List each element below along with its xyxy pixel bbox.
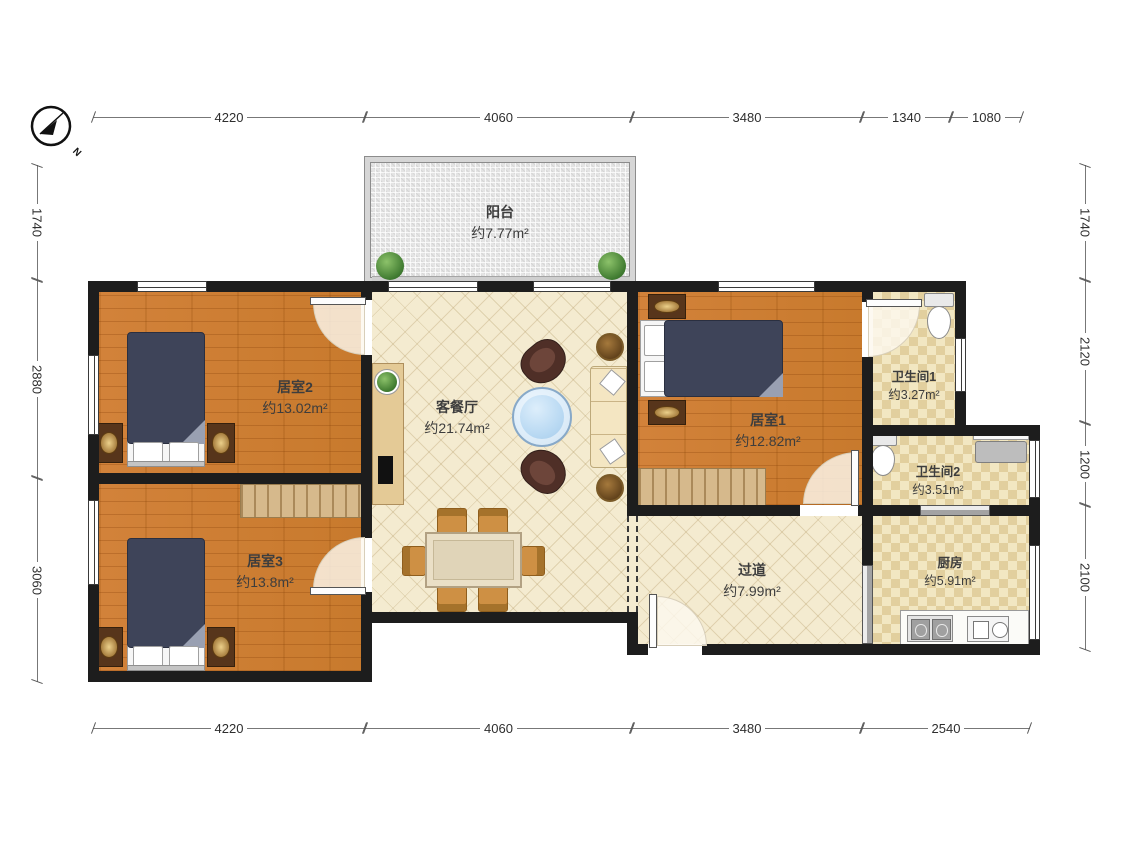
room-label-bathroom2: 卫生间2 约3.51m² xyxy=(912,463,963,499)
wall-left-exterior xyxy=(88,281,99,682)
wall-top-exterior xyxy=(88,281,966,292)
dim-label: 4060 xyxy=(480,721,517,736)
dim-right-1: 1740 xyxy=(1076,165,1094,280)
kitchen-stove xyxy=(967,616,1009,642)
nightstand xyxy=(207,627,235,667)
room-label-living: 客餐厅 约21.74m² xyxy=(424,397,489,439)
nightstand xyxy=(95,423,123,463)
compass-icon xyxy=(28,104,76,152)
room-label-bedroom1: 居室1 约12.82m² xyxy=(735,410,800,452)
dim-left-1: 1740 xyxy=(28,165,46,280)
dim-label: 1340 xyxy=(888,110,925,125)
dining-chair xyxy=(478,586,508,612)
stove-burner xyxy=(973,621,989,639)
room-name: 卫生间2 xyxy=(912,463,963,481)
dim-label: 3480 xyxy=(729,110,766,125)
balcony-plant xyxy=(598,252,626,280)
bed-bedroom1 xyxy=(640,320,783,397)
pillow xyxy=(169,646,199,667)
shower xyxy=(975,441,1027,463)
dim-label: 2120 xyxy=(1078,333,1093,370)
room-name: 卫生间1 xyxy=(888,368,939,386)
wall-bedroom1-bath1 xyxy=(862,357,873,516)
dim-label: 4220 xyxy=(211,110,248,125)
toilet-bathroom2 xyxy=(869,432,897,476)
dining-table xyxy=(425,532,522,588)
dim-bottom-4: 2540 xyxy=(862,719,1030,737)
toilet-tank xyxy=(924,293,954,307)
toilet-bathroom1 xyxy=(924,293,954,339)
room-name: 厨房 xyxy=(924,554,975,572)
dim-top-3: 3480 xyxy=(632,108,862,126)
door-leaf-entry xyxy=(649,594,657,648)
wall-hallway-kitchen xyxy=(862,505,873,565)
door-leaf-bedroom3 xyxy=(310,587,366,595)
room-area: 约7.77m² xyxy=(471,223,529,244)
wall-leftwing-living xyxy=(361,355,372,538)
nightstand xyxy=(648,400,686,425)
bed-duvet xyxy=(664,320,783,397)
wall-bath2-kitchen xyxy=(873,505,920,516)
room-area: 约13.02m² xyxy=(262,398,327,419)
dim-label: 3480 xyxy=(729,721,766,736)
wall-bottom-left-wing xyxy=(88,671,372,682)
tv xyxy=(378,456,393,484)
floorplan-canvas: 阳台 约7.77m² 居室2 约13.02m² 居室3 约13.8m² 客餐厅 … xyxy=(0,0,1125,844)
door-leaf-bedroom2 xyxy=(310,297,366,305)
dim-top-5: 1080 xyxy=(951,108,1022,126)
wall-bottom-hallway-kitchen xyxy=(702,644,1040,655)
dim-top-4: 1340 xyxy=(862,108,951,126)
window-bedroom2-top xyxy=(137,281,207,292)
wall-hallway-left xyxy=(627,612,638,655)
nightstand xyxy=(95,627,123,667)
dim-label: 3060 xyxy=(30,562,45,599)
room-area: 约3.27m² xyxy=(888,386,939,404)
sink-basin xyxy=(932,619,951,640)
bed-bedroom3 xyxy=(127,538,205,671)
window-bedroom1-top xyxy=(718,281,815,292)
dining-chair xyxy=(402,546,426,576)
room-name: 客餐厅 xyxy=(424,397,489,418)
dim-label: 2880 xyxy=(30,361,45,398)
side-table xyxy=(596,333,624,361)
north-compass: N xyxy=(28,104,76,152)
nightstand xyxy=(648,294,686,319)
room-label-bedroom3: 居室3 约13.8m² xyxy=(236,551,294,593)
room-area: 约3.51m² xyxy=(912,481,963,499)
dim-bottom-1: 4220 xyxy=(93,719,365,737)
window-bathroom1-right xyxy=(955,338,966,392)
wall-bath1-bath2 xyxy=(862,425,1040,436)
toilet-bowl xyxy=(927,306,951,339)
window-bathroom2-right xyxy=(1029,440,1040,498)
room-label-hallway: 过道 约7.99m² xyxy=(723,560,781,602)
balcony-plant xyxy=(376,252,404,280)
toilet-bowl xyxy=(871,445,895,476)
dim-right-2: 2120 xyxy=(1076,280,1094,423)
dim-left-3: 3060 xyxy=(28,478,46,682)
room-area: 约13.8m² xyxy=(236,572,294,593)
dim-label: 1080 xyxy=(968,110,1005,125)
pillow xyxy=(133,442,163,463)
dining-chair xyxy=(478,508,508,534)
pillow xyxy=(133,646,163,667)
dim-right-3: 1200 xyxy=(1076,423,1094,505)
room-label-bedroom2: 居室2 约13.02m² xyxy=(262,377,327,419)
dim-top-2: 4060 xyxy=(365,108,632,126)
wall-living-bedroom1 xyxy=(627,281,638,516)
kitchen-counter xyxy=(900,610,1029,645)
kitchen-sink xyxy=(907,615,953,642)
room-name: 阳台 xyxy=(471,202,529,223)
bed-footboard xyxy=(127,461,205,467)
coffee-table xyxy=(512,387,572,447)
sofa xyxy=(590,366,627,468)
wall-bedroom1-bottom xyxy=(627,505,800,516)
dim-label: 2100 xyxy=(1078,559,1093,596)
dim-label: 1200 xyxy=(1078,446,1093,483)
sliding-door-kitchen xyxy=(862,565,873,644)
room-label-kitchen: 厨房 约5.91m² xyxy=(924,554,975,590)
door-leaf-bathroom1 xyxy=(866,299,922,307)
dim-bottom-2: 4060 xyxy=(365,719,632,737)
wall-bedroom2-bedroom3 xyxy=(88,473,372,484)
bed-duvet xyxy=(127,332,205,444)
room-label-bathroom1: 卫生间1 约3.27m² xyxy=(888,368,939,404)
room-name: 居室3 xyxy=(236,551,294,572)
sliding-door-bathroom2 xyxy=(920,505,990,516)
dim-label: 4060 xyxy=(480,110,517,125)
dim-right-4: 2100 xyxy=(1076,505,1094,650)
plant xyxy=(377,372,397,392)
window-balcony-door-right xyxy=(533,281,611,292)
window-balcony-door-left xyxy=(388,281,478,292)
dim-left-2: 2880 xyxy=(28,280,46,478)
room-label-balcony: 阳台 约7.77m² xyxy=(471,202,529,244)
door-leaf-bedroom1 xyxy=(851,450,859,506)
pillow xyxy=(169,442,199,463)
dim-label: 1740 xyxy=(30,204,45,241)
wardrobe-bedroom3 xyxy=(240,484,362,518)
room-area: 约21.74m² xyxy=(424,418,489,439)
window-bedroom2-left xyxy=(88,355,99,435)
dim-top-1: 4220 xyxy=(93,108,365,126)
dim-bottom-3: 3480 xyxy=(632,719,862,737)
bed-duvet xyxy=(127,538,205,648)
room-area: 约5.91m² xyxy=(924,572,975,590)
room-name: 居室1 xyxy=(735,410,800,431)
room-area: 约7.99m² xyxy=(723,581,781,602)
window-bedroom3-left xyxy=(88,500,99,585)
nightstand xyxy=(207,423,235,463)
dim-label: 2540 xyxy=(928,721,965,736)
sink-basin xyxy=(911,619,930,640)
dim-label: 4220 xyxy=(211,721,248,736)
opening-living-hallway xyxy=(627,516,638,612)
dining-chair xyxy=(521,546,545,576)
stove-burner xyxy=(992,622,1008,638)
dining-chair xyxy=(437,586,467,612)
window-kitchen-right xyxy=(1029,545,1040,640)
wall-living-bottom xyxy=(365,612,638,623)
sofa-pillow xyxy=(599,438,625,464)
dining-chair xyxy=(437,508,467,534)
bed-bedroom2 xyxy=(127,332,205,467)
room-name: 过道 xyxy=(723,560,781,581)
side-table xyxy=(596,474,624,502)
dim-label: 1740 xyxy=(1078,204,1093,241)
wardrobe-bedroom1 xyxy=(638,468,766,506)
wall-leftwing-living xyxy=(361,592,372,682)
sofa-pillow xyxy=(599,369,626,396)
room-name: 居室2 xyxy=(262,377,327,398)
room-area: 约12.82m² xyxy=(735,431,800,452)
